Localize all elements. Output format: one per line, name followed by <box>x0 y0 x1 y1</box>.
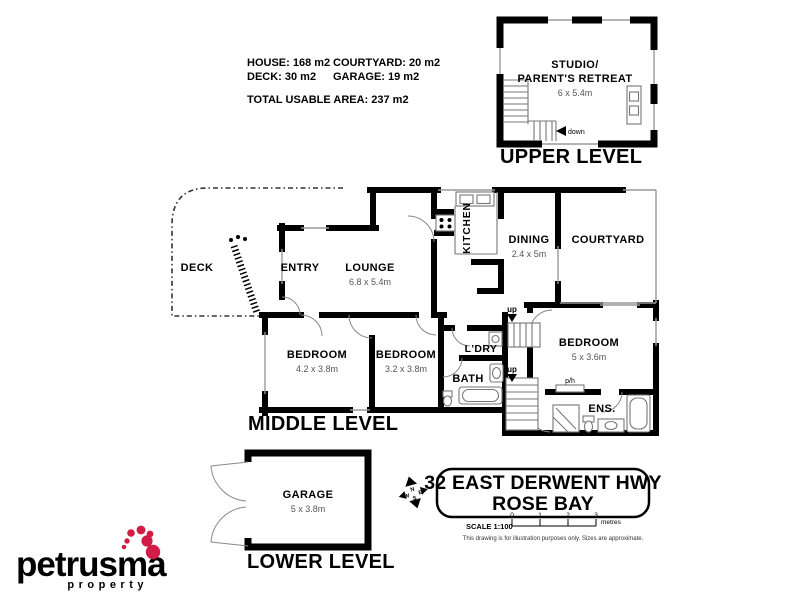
courtyard-label: COURTYARD <box>572 234 645 246</box>
address-box: 32 EAST DERWENT HWY ROSE BAY <box>424 469 661 517</box>
ensuite-label: ENS. <box>588 403 615 415</box>
bedroom3-label: BEDROOM <box>559 337 619 349</box>
scale-tick-1: 1 <box>538 512 542 519</box>
laundry-label: L'DRY <box>465 343 498 355</box>
entry-steps <box>229 235 257 313</box>
address-line2: ROSE BAY <box>492 493 594 515</box>
upper-stairs <box>504 80 556 141</box>
scale-tick-3: 3 <box>594 512 598 519</box>
address-line1: 32 EAST DERWENT HWY <box>424 472 661 494</box>
garage-size: 5 x 3.8m <box>291 504 326 514</box>
middle-level-plan: DECK ENTRY LOUNGE 6.8 x 5.4m KITCHEN DIN… <box>172 188 656 435</box>
garage-door-gap <box>242 462 253 538</box>
middle-doors <box>282 216 622 432</box>
middle-level-title: MIDDLE LEVEL <box>248 413 398 435</box>
bedroom2-size: 3.2 x 3.8m <box>385 364 427 374</box>
compass-n: N <box>410 487 415 494</box>
floorplan-page: HOUSE: 168 m2 DECK: 30 m2 COURTYARD: 20 … <box>0 0 800 600</box>
scale-tick-0: 0 <box>510 512 514 519</box>
upper-level-title: UPPER LEVEL <box>500 146 642 168</box>
scale-label: SCALE 1:100 <box>466 522 513 531</box>
scale-unit: metres <box>601 519 622 526</box>
bedroom1-label: BEDROOM <box>287 349 347 361</box>
upper-kitchenette <box>627 86 641 124</box>
up-arrow-1-icon <box>507 314 517 322</box>
deck-outline <box>172 188 343 316</box>
area-stats: HOUSE: 168 m2 DECK: 30 m2 COURTYARD: 20 … <box>247 57 440 106</box>
stat-house: HOUSE: 168 m2 <box>247 57 330 69</box>
dining-label: DINING <box>509 234 550 246</box>
up-label-1: up <box>507 305 517 314</box>
stat-garage: GARAGE: 19 m2 <box>333 71 419 83</box>
kitchen-label: KITCHEN <box>462 202 473 253</box>
stove-stub-top <box>434 209 454 215</box>
brand-logo: petrusma property <box>16 526 167 591</box>
logo-tagline: property <box>67 579 148 591</box>
studio-label-1: STUDIO/ <box>551 59 598 71</box>
dining-size: 2.4 x 5m <box>512 249 547 259</box>
bath-label: BATH <box>452 373 483 385</box>
compass-w: W <box>404 493 411 500</box>
lounge-label: LOUNGE <box>345 262 394 274</box>
stat-courtyard: COURTYARD: 20 m2 <box>333 57 440 69</box>
entry-label: ENTRY <box>281 262 320 274</box>
studio-size: 6 x 5.4m <box>558 88 593 98</box>
bedroom2-label: BEDROOM <box>376 349 436 361</box>
garage-label: GARAGE <box>283 489 334 501</box>
up-label-2: up <box>507 365 517 374</box>
bedroom1-size: 4.2 x 3.8m <box>296 364 338 374</box>
scale-disclaimer: This drawing is for illustration purpose… <box>463 536 644 542</box>
compass-s: S <box>412 495 417 502</box>
deck-label: DECK <box>181 262 214 274</box>
bedroom3-size: 5 x 3.6m <box>572 352 607 362</box>
scale-tick-2: 2 <box>566 512 570 519</box>
stat-deck: DECK: 30 m2 <box>247 71 316 83</box>
studio-label-2: PARENT'S RETREAT <box>518 73 633 85</box>
floorplan-canvas: HOUSE: 168 m2 DECK: 30 m2 COURTYARD: 20 … <box>0 0 800 600</box>
down-arrow-icon <box>556 126 566 136</box>
down-label: down <box>568 129 585 136</box>
lower-level-title: LOWER LEVEL <box>247 551 395 573</box>
stat-total: TOTAL USABLE AREA: 237 m2 <box>247 94 409 106</box>
upper-level-plan: down STUDIO/ PARENT'S RETREAT 6 x 5.4m U… <box>494 14 659 168</box>
lounge-size: 6.8 x 5.4m <box>349 277 391 287</box>
lower-level-plan: GARAGE 5 x 3.8m LOWER LEVEL <box>211 453 395 573</box>
ph-label: p/h <box>565 378 575 385</box>
